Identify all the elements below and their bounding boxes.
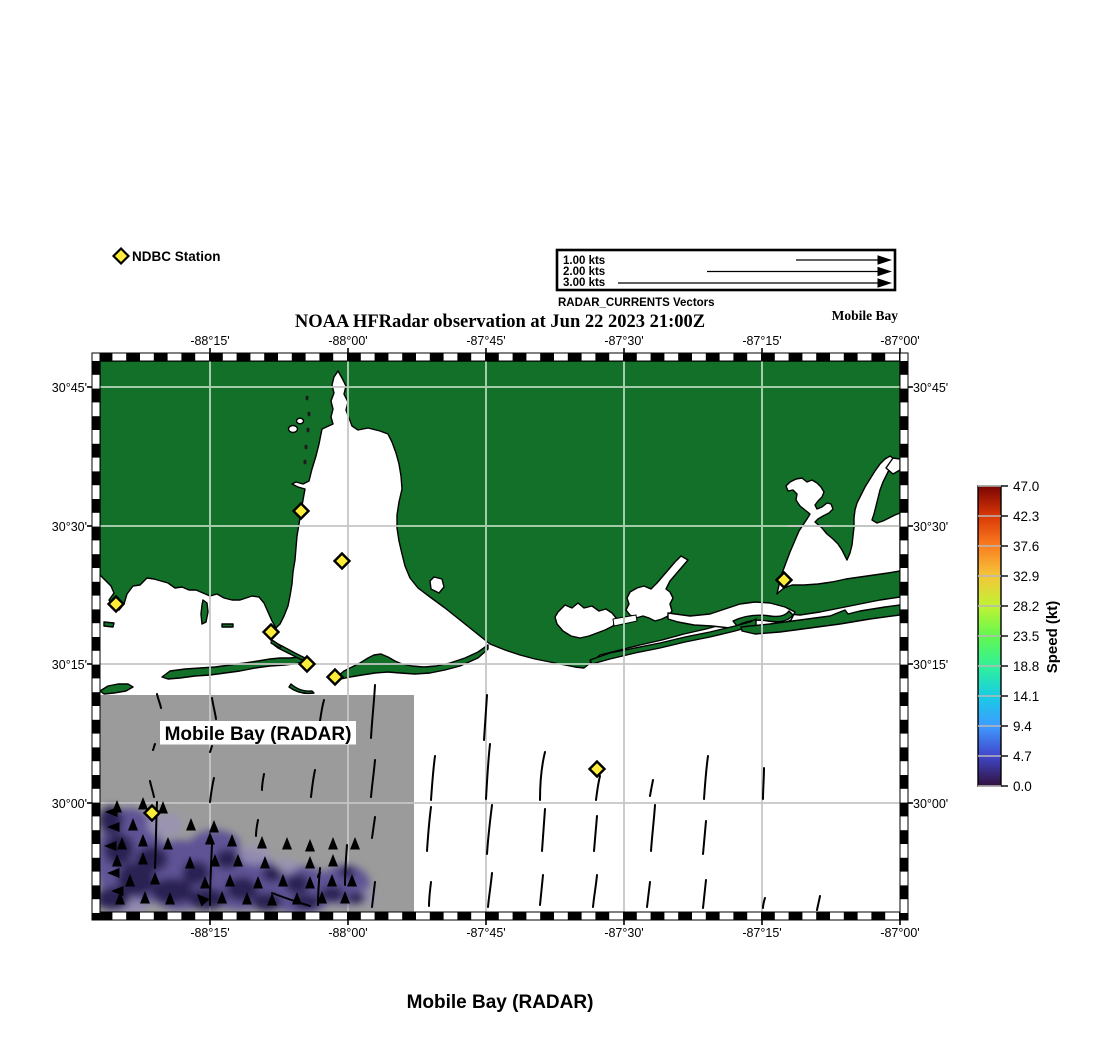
svg-text:-88°00': -88°00' (328, 926, 367, 940)
svg-text:Mobile Bay (RADAR): Mobile Bay (RADAR) (407, 992, 594, 1013)
svg-text:Mobile Bay: Mobile Bay (832, 308, 899, 323)
svg-text:30°30': 30°30' (913, 520, 948, 534)
svg-text:-88°00': -88°00' (328, 334, 367, 348)
svg-text:30°45': 30°45' (913, 381, 948, 395)
svg-text:30°00': 30°00' (52, 797, 87, 811)
svg-text:-88°15': -88°15' (190, 926, 229, 940)
svg-text:3.00 kts: 3.00 kts (563, 277, 605, 289)
svg-text:-88°15': -88°15' (190, 334, 229, 348)
svg-text:9.4: 9.4 (1013, 719, 1032, 734)
svg-text:-87°45': -87°45' (466, 926, 505, 940)
svg-text:-87°00': -87°00' (880, 926, 919, 940)
svg-text:RADAR_CURRENTS Vectors: RADAR_CURRENTS Vectors (558, 297, 715, 309)
svg-text:NDBC Station: NDBC Station (132, 249, 221, 264)
svg-text:30°00': 30°00' (913, 797, 948, 811)
svg-text:-87°15': -87°15' (742, 334, 781, 348)
svg-text:32.9: 32.9 (1013, 569, 1039, 584)
svg-text:30°15': 30°15' (913, 658, 948, 672)
svg-text:30°15': 30°15' (52, 658, 87, 672)
svg-text:0.0: 0.0 (1013, 779, 1032, 794)
svg-text:-87°15': -87°15' (742, 926, 781, 940)
svg-text:23.5: 23.5 (1013, 629, 1039, 644)
svg-text:-87°30': -87°30' (604, 334, 643, 348)
svg-text:Mobile Bay (RADAR): Mobile Bay (RADAR) (165, 724, 352, 745)
svg-text:28.2: 28.2 (1013, 599, 1039, 614)
svg-text:14.1: 14.1 (1013, 689, 1039, 704)
svg-text:-87°30': -87°30' (604, 926, 643, 940)
svg-text:47.0: 47.0 (1013, 479, 1039, 494)
svg-text:42.3: 42.3 (1013, 509, 1039, 524)
svg-text:-87°00': -87°00' (880, 334, 919, 348)
svg-text:30°45': 30°45' (52, 381, 87, 395)
svg-text:Speed (kt): Speed (kt) (1044, 601, 1061, 674)
svg-text:NOAA HFRadar observation at Ju: NOAA HFRadar observation at Jun 22 2023 … (295, 312, 705, 332)
svg-text:30°30': 30°30' (52, 520, 87, 534)
svg-text:-87°45': -87°45' (466, 334, 505, 348)
svg-text:4.7: 4.7 (1013, 749, 1032, 764)
svg-text:18.8: 18.8 (1013, 659, 1039, 674)
svg-text:37.6: 37.6 (1013, 539, 1039, 554)
